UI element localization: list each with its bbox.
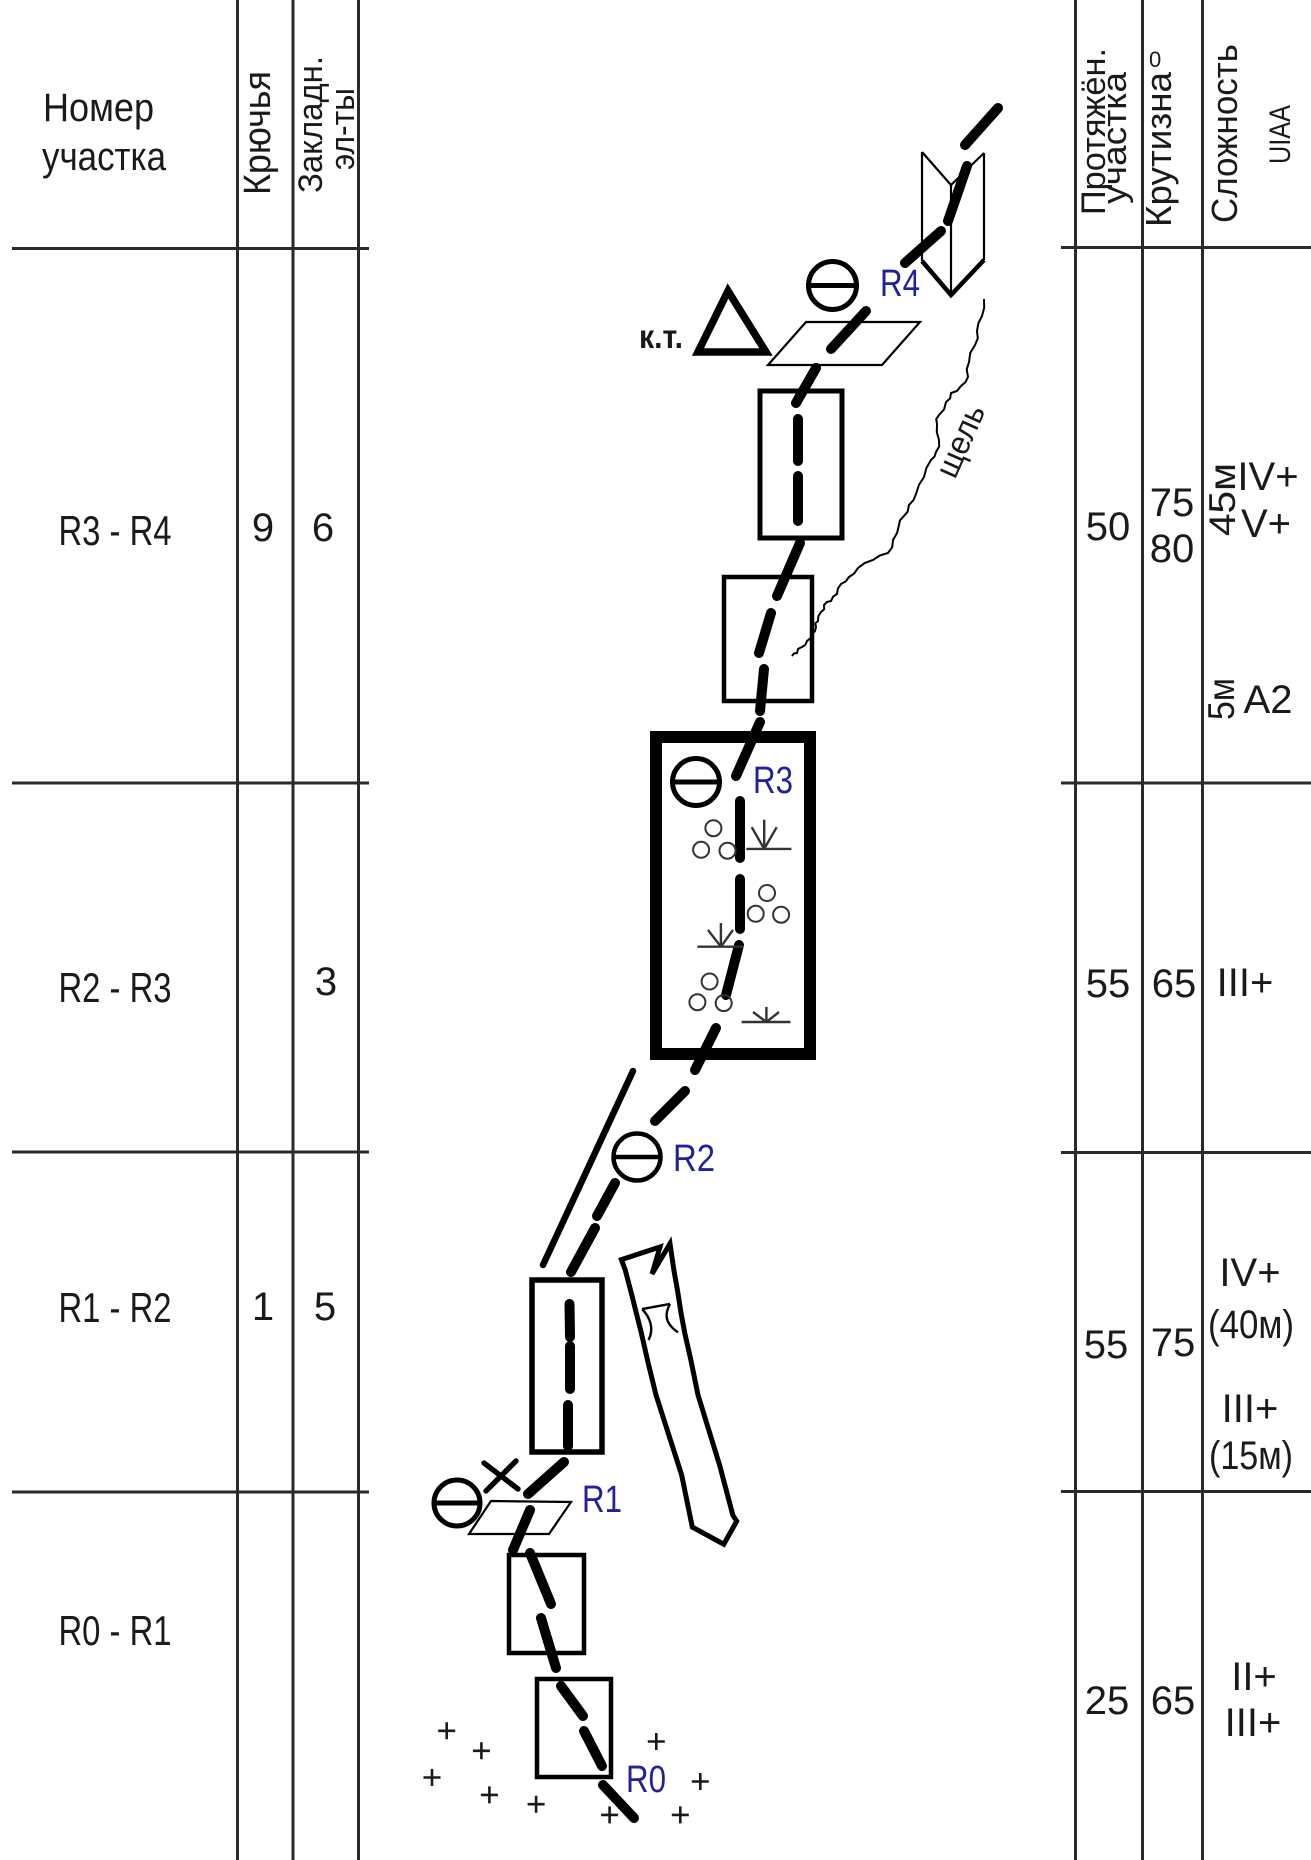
svg-text:0: 0 [1149,47,1161,72]
svg-text:IV+: IV+ [1219,1251,1280,1295]
svg-text:65: 65 [1151,1679,1196,1723]
svg-text:R0: R0 [626,1759,666,1801]
svg-text:6: 6 [312,506,334,550]
svg-text:1: 1 [252,1285,274,1329]
svg-text:80: 80 [1150,527,1195,571]
svg-text:R3: R3 [753,760,793,802]
svg-text:III+: III+ [1217,961,1274,1005]
svg-text:Сложность: Сложность [1204,44,1245,223]
svg-text:R3 - R4: R3 - R4 [59,507,172,554]
svg-text:3: 3 [315,960,337,1004]
svg-text:участка: участка [1096,72,1134,204]
svg-text:5: 5 [314,1285,336,1329]
svg-text:Крючья: Крючья [237,71,279,195]
svg-text:III+: III+ [1225,1701,1282,1745]
svg-text:45м: 45м [1202,463,1243,536]
svg-text:65: 65 [1152,962,1197,1006]
svg-text:25: 25 [1085,1679,1130,1723]
svg-text:V+: V+ [1241,502,1291,546]
svg-text:50: 50 [1086,505,1131,549]
svg-text:R2 - R3: R2 - R3 [59,964,172,1011]
svg-text:A2: A2 [1244,678,1293,722]
svg-text:55: 55 [1084,1323,1129,1367]
svg-text:9: 9 [252,506,274,550]
svg-text:(40м): (40м) [1208,1303,1294,1347]
svg-text:Крутизна: Крутизна [1138,71,1179,227]
svg-text:участка: участка [42,135,167,179]
svg-text:UIAA: UIAA [1264,105,1297,164]
svg-text:R1 - R2: R1 - R2 [59,1284,172,1331]
svg-text:к.т.: к.т. [639,318,683,355]
svg-text:75: 75 [1151,1321,1196,1365]
svg-text:R0 - R1: R0 - R1 [59,1607,172,1654]
svg-text:75: 75 [1150,481,1195,525]
svg-text:Номер: Номер [43,86,154,130]
svg-text:эл-ты: эл-ты [324,88,362,170]
svg-text:5м: 5м [1201,678,1242,720]
svg-text:R4: R4 [880,263,920,305]
svg-text:55: 55 [1086,962,1131,1006]
svg-text:R2: R2 [673,1138,715,1180]
svg-text:IV+: IV+ [1237,455,1298,499]
svg-text:II+: II+ [1231,1655,1277,1699]
svg-text:R1: R1 [582,1479,622,1521]
svg-text:(15м): (15м) [1209,1434,1293,1478]
svg-text:III+: III+ [1222,1387,1279,1431]
